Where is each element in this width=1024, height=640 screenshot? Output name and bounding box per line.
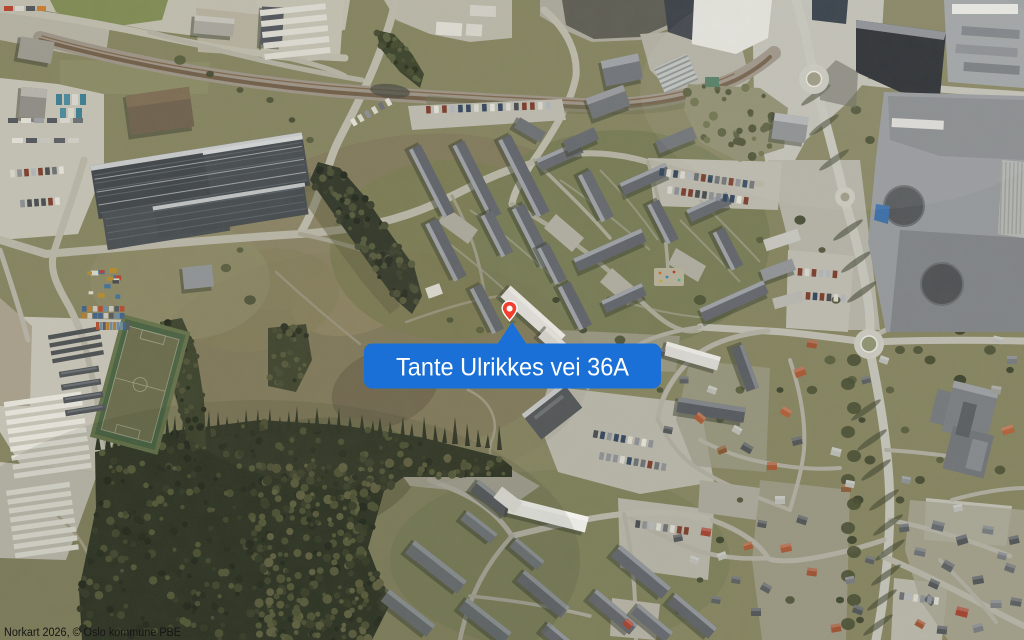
svg-text:Tante Ulrikkes vei 36A: Tante Ulrikkes vei 36A <box>396 354 629 382</box>
svg-text:Norkart 2026, © Oslo kommune P: Norkart 2026, © Oslo kommune PBE <box>4 627 181 639</box>
